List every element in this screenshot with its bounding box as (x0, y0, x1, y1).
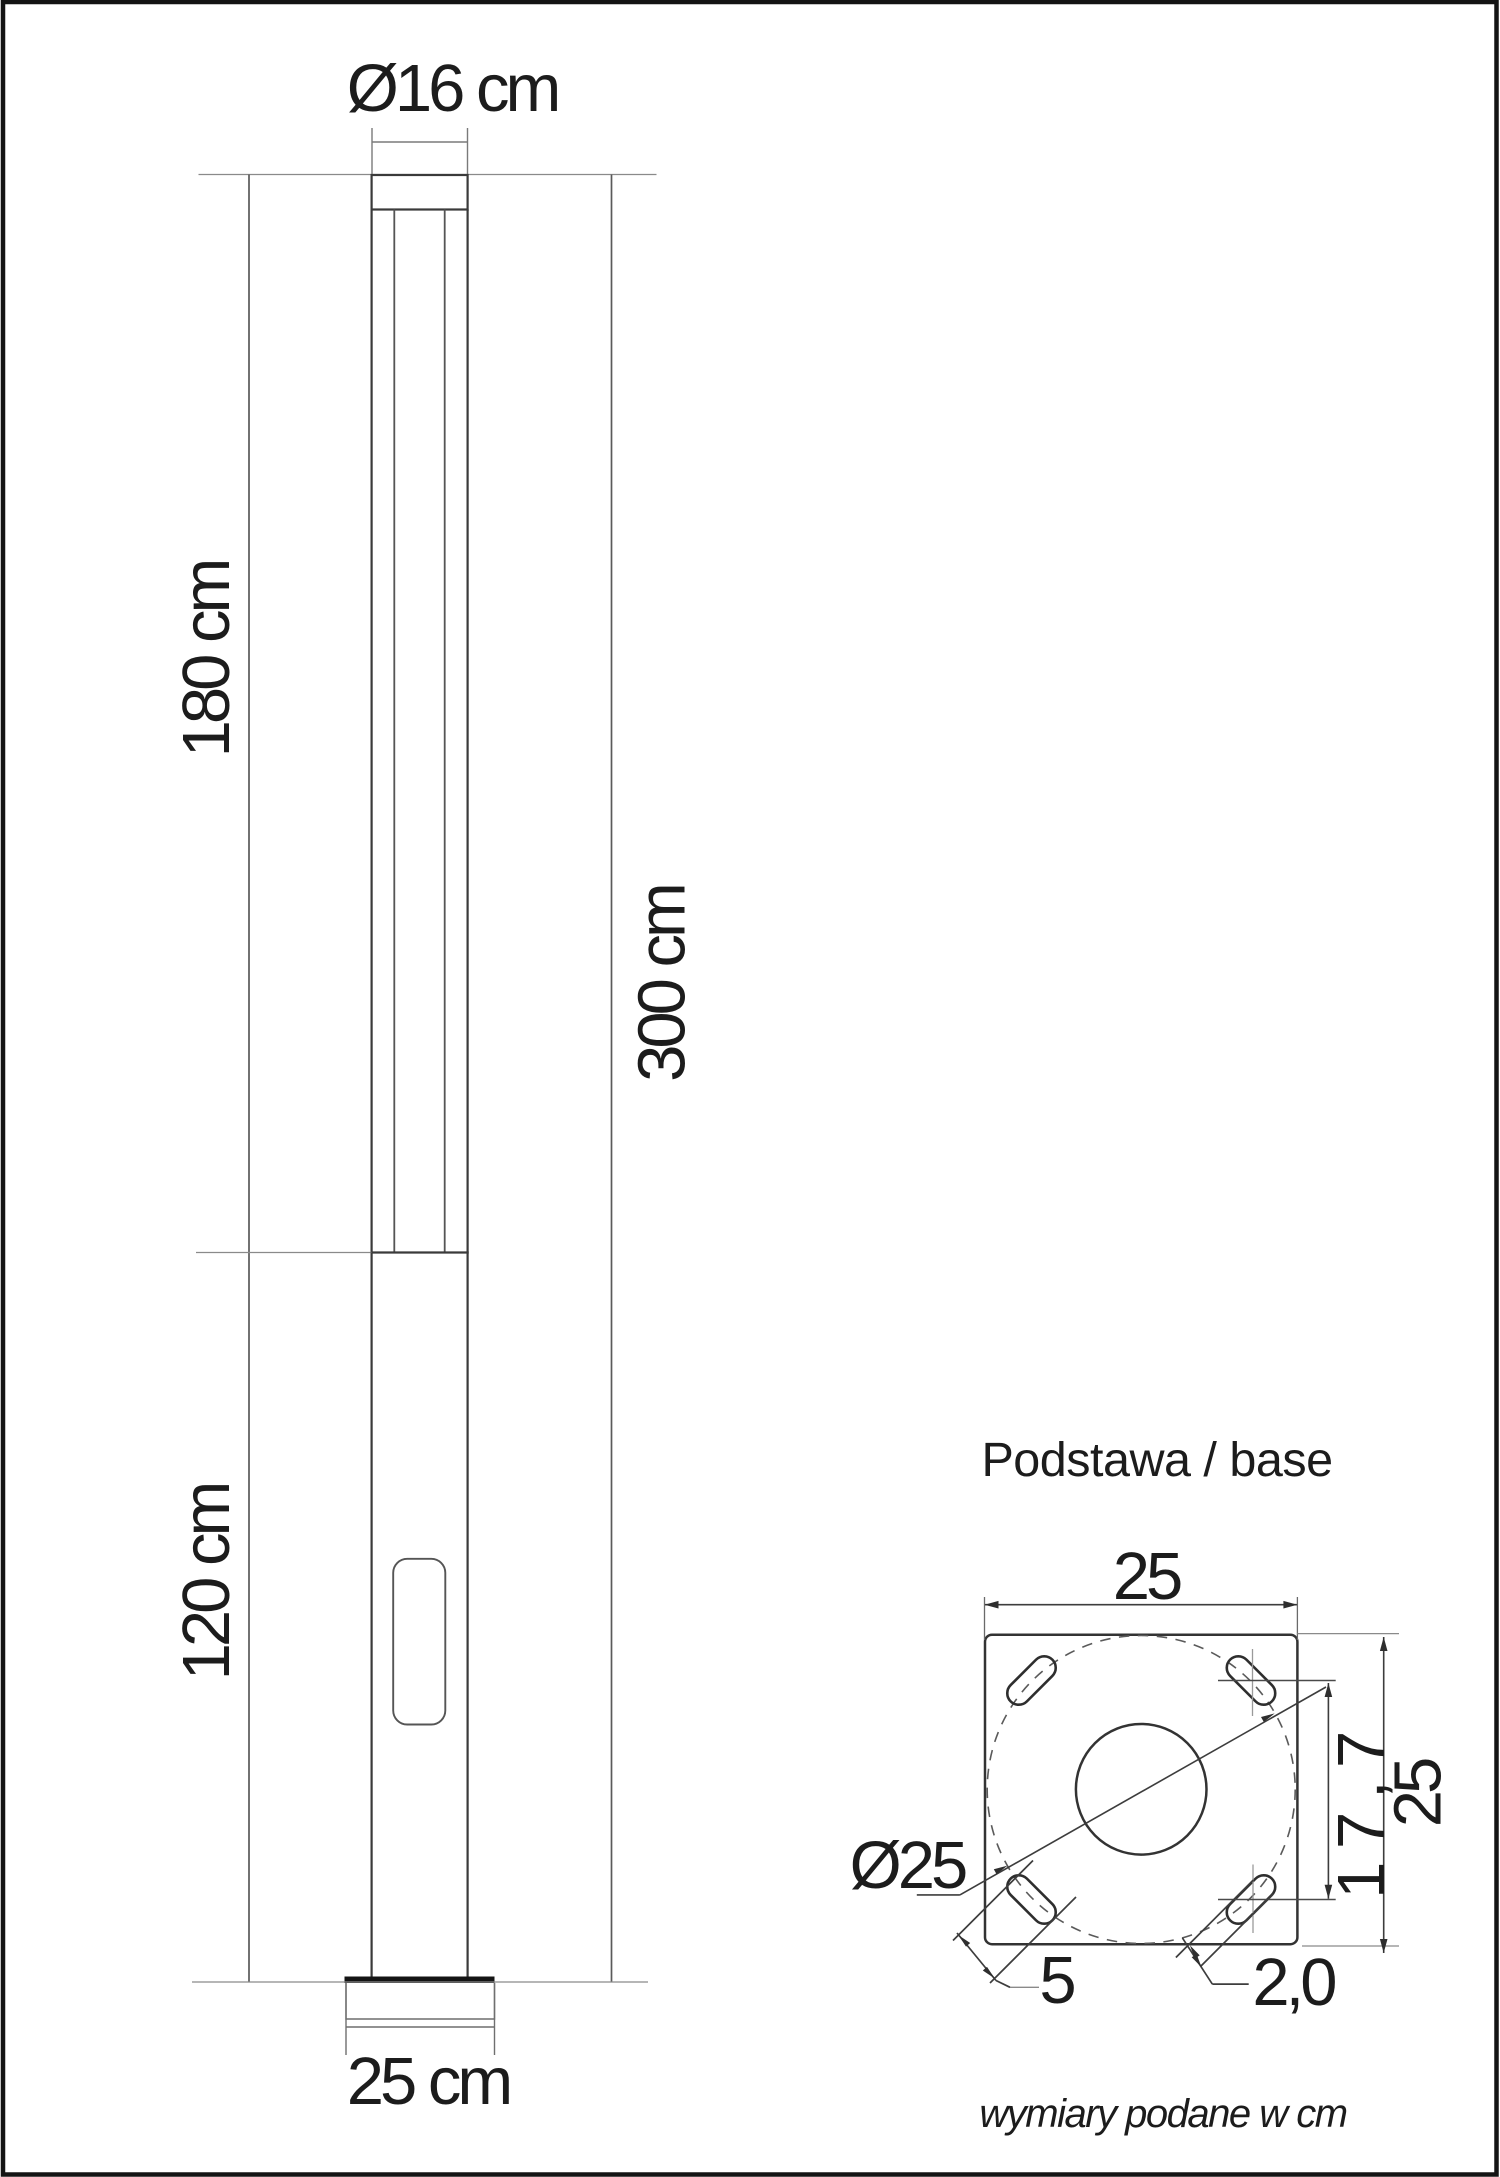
svg-text:25 cm: 25 cm (347, 2044, 510, 2119)
svg-text:25: 25 (1113, 1539, 1181, 1614)
svg-text:5: 5 (1039, 1943, 1074, 2018)
svg-text:300 cm: 300 cm (625, 886, 700, 1082)
svg-text:Ø25: Ø25 (850, 1828, 966, 1903)
svg-text:Ø16 cm: Ø16 cm (347, 51, 558, 126)
svg-text:2,0: 2,0 (1252, 1945, 1335, 2020)
svg-text:17,7: 17,7 (1324, 1718, 1399, 1899)
svg-text:wymiary podane w cm: wymiary podane w cm (979, 2092, 1346, 2136)
svg-text:120 cm: 120 cm (169, 1484, 244, 1680)
svg-text:180 cm: 180 cm (169, 561, 244, 757)
svg-text:Podstawa / base: Podstawa / base (981, 1433, 1332, 1487)
